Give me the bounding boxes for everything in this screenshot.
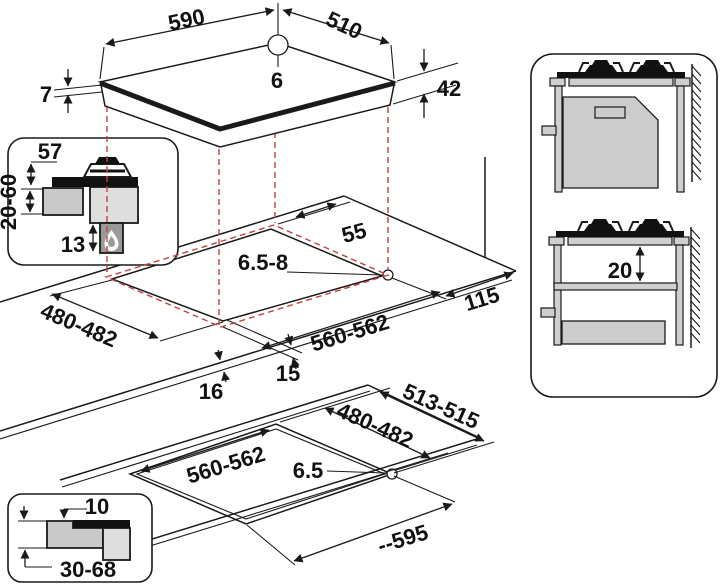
hob-glass [556,231,684,237]
ext-line [100,47,104,79]
cabinet-side-right [676,245,683,345]
worktop-thickness-label: 30-68 [60,557,116,582]
hob-body [569,78,673,86]
ext-line [394,476,455,502]
corner-radius-label: 6.5-8 [238,250,288,275]
rear-clearance-label: 55 [339,218,369,248]
hob-glass [557,72,685,78]
cabinet-side-left [554,245,561,345]
ext-line [223,327,298,360]
hole-diameter-label: 6 [271,68,283,93]
gas-inlet-tab [541,308,555,317]
cutout-width-label: 560-562 [308,309,393,357]
hob-installation-diagram: 55 6.5-8 115 480-482 560-562 15 16 [0,0,720,587]
ext-line [54,85,102,90]
overhang-front-label: 15 [276,361,300,386]
ext-line [50,280,112,296]
separation-shelf [554,283,677,290]
flush-section-detail-box: 10 30-68 [8,494,152,582]
cabinet-views-panel: 20 [531,54,717,397]
gas-section-detail-box: 57 20-60 13 [0,138,178,265]
hob-depth-label: 510 [322,6,366,44]
hob-width-label: 590 [166,4,207,36]
worktop-thickness-label: 20-60 [0,174,21,230]
overhang-side-label: 16 [199,379,223,404]
hob-body-section [90,187,138,223]
dim-rear-clearance [296,204,336,217]
hob-body-section [103,528,130,560]
hob-glass-section [73,520,130,528]
worktop-back-right-edge [344,196,516,271]
hob-glass-section [52,177,138,187]
cabinet-rail-right [675,78,690,86]
cabinet-rail-right [674,237,689,245]
shelf-clearance-label: 20 [608,258,632,283]
drawer-box [562,321,665,344]
dim-overhang-side-a [218,350,220,360]
inner-depth-label: 480-482 [333,397,417,453]
corner-radius-label: 6.5 [293,458,324,483]
worktop-section [43,188,83,215]
diagram-canvas: 55 6.5-8 115 480-482 560-562 15 16 [0,0,720,587]
ext-line [54,92,102,97]
ext-line [160,322,223,341]
oven-vent [595,107,625,118]
ext-line [227,320,302,353]
step-depth-label: 10 [85,494,109,519]
leader-line [287,272,382,275]
body-height-label: 42 [437,76,461,101]
hob-isometric-view: 6 590 510 7 42 [40,3,461,147]
overall-width-label: --595 [375,519,431,558]
glass-thickness-label: 7 [40,82,52,107]
ext-line [392,278,446,299]
outer-depth-label: 513-515 [399,378,483,434]
hole-mark [268,35,288,55]
dim-overall-width [294,504,452,561]
cabinet-rail-left [549,237,564,245]
dim-overhang-side-b [224,372,226,382]
inner-width-label: 560-562 [184,441,269,489]
cabinet-side-left [555,86,562,192]
burner-height-label: 57 [38,139,62,164]
gas-inlet-tab [542,126,556,135]
ext-line [391,45,394,79]
hob-body [568,237,672,245]
cabinet-side-right [677,86,684,192]
ext-line [386,453,448,472]
ext-line [247,525,295,565]
cabinet-rail-left [550,78,565,86]
rebate-outer-outline [130,424,392,524]
cutout-depth-label: 480-482 [37,298,121,353]
bottom-clearance-label: 13 [61,232,85,257]
